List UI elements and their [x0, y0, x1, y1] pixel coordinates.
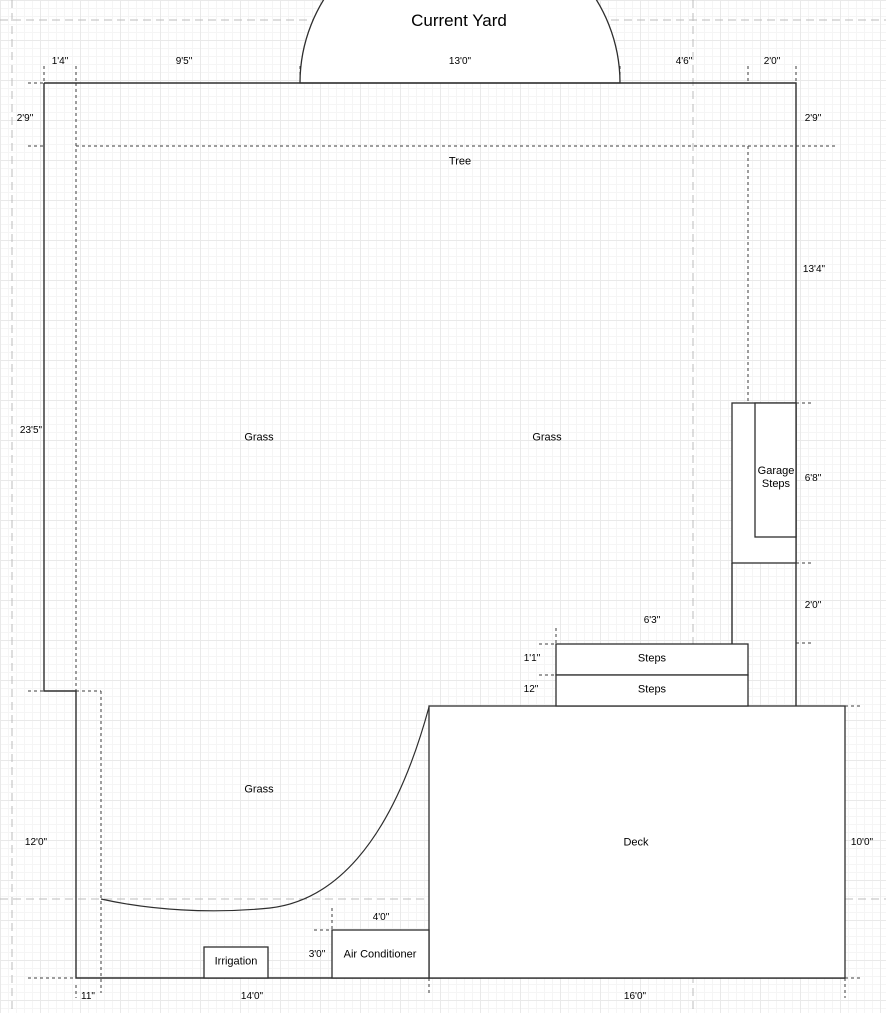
- dim-top-1-4: 1'4": [52, 56, 69, 68]
- dim-right-2-9: 2'9": [805, 113, 822, 125]
- grass-left-label: Grass: [244, 431, 273, 444]
- yard-plan-drawing: [0, 0, 886, 1013]
- air-conditioner-label: Air Conditioner: [344, 948, 417, 961]
- dim-right-10-0: 10'0": [851, 837, 873, 849]
- dim-top-13-0: 13'0": [449, 56, 471, 68]
- garage-steps-label: Garage Steps: [751, 465, 801, 491]
- grass-bottom-label: Grass: [244, 783, 273, 796]
- dim-top-9-5: 9'5": [176, 56, 193, 68]
- yard-plan-canvas: Current Yard 1'4" 9'5" 13'0" 4'6" 2'0" 2…: [0, 0, 886, 1013]
- dim-ac-4-0: 4'0": [373, 912, 390, 924]
- page-title: Current Yard: [408, 11, 510, 31]
- steps-lower-label: Steps: [638, 683, 666, 696]
- dim-steps-6-3: 6'3": [644, 615, 661, 627]
- dim-left-2-9: 2'9": [17, 113, 34, 125]
- dim-left-12-0: 12'0": [25, 837, 47, 849]
- grass-right-label: Grass: [532, 431, 561, 444]
- dim-bottom-16-0: 16'0": [624, 991, 646, 1003]
- dim-bottom-11: 11": [81, 991, 95, 1003]
- dim-top-2-0: 2'0": [764, 56, 781, 68]
- dim-ac-3-0: 3'0": [309, 949, 326, 961]
- steps-upper-label: Steps: [638, 652, 666, 665]
- deck-label: Deck: [623, 836, 648, 849]
- dim-top-4-6: 4'6": [676, 56, 693, 68]
- dim-steps-1-1: 1'1": [524, 653, 541, 665]
- dim-steps-12: 12": [524, 684, 539, 696]
- irrigation-label: Irrigation: [215, 955, 258, 968]
- dim-right-13-4: 13'4": [803, 264, 825, 276]
- dim-right-6-8: 6'8": [805, 473, 822, 485]
- tree-label: Tree: [449, 155, 471, 168]
- dim-right-2-0: 2'0": [805, 600, 822, 612]
- bed-edge-curve: [101, 707, 429, 911]
- dim-bottom-14-0: 14'0": [241, 991, 263, 1003]
- dim-left-23-5: 23'5": [20, 425, 42, 437]
